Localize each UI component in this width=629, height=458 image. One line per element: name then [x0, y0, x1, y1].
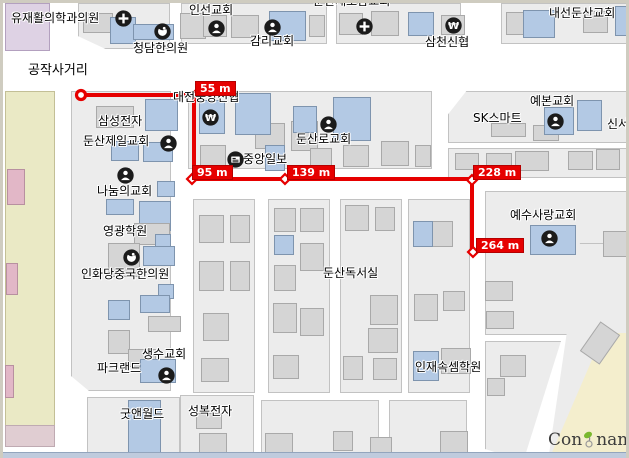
building-blue: [108, 300, 130, 320]
building: [199, 215, 224, 243]
clipped-top-label: 둔산새로남교회: [313, 0, 390, 9]
map-canvas[interactable]: Con namul 유재활의학과의원청담한의원인선교회감리교회둔산새로남교회삼천…: [0, 0, 629, 458]
oriental-medicine-icon: [154, 23, 171, 40]
building-blue: [140, 295, 170, 313]
building: [375, 207, 395, 231]
svg-text:₩: ₩: [448, 21, 459, 32]
building: [431, 221, 453, 247]
church-icon: [547, 113, 564, 130]
building-blue: [274, 235, 294, 255]
label-saengsu-church: 생수교회: [142, 345, 186, 362]
label-parkland: 파크랜드: [97, 359, 141, 376]
building: [343, 356, 363, 380]
building: [274, 208, 296, 232]
building: [487, 378, 505, 396]
building-blue: [157, 181, 175, 197]
label-seongbok-electronics: 성복전자: [188, 402, 232, 419]
building: [300, 208, 324, 232]
building: [273, 355, 299, 379]
building: [486, 311, 514, 329]
hospital-cross-icon: [115, 10, 132, 27]
bank-won-icon: ₩: [202, 109, 219, 126]
label-injae-academy: 인재속셈학원: [415, 358, 481, 375]
label-yujae-clinic: 유재활의학과의원: [11, 9, 99, 26]
building: [371, 11, 399, 36]
congnamul-logo: Con namul: [548, 430, 629, 450]
building: [603, 231, 627, 257]
distance-badge: 228 m: [473, 165, 521, 180]
building: [333, 431, 353, 451]
building: [309, 15, 325, 37]
building-blue: [143, 246, 175, 266]
building: [148, 316, 181, 332]
church-icon: [264, 19, 281, 36]
building-pink: [5, 365, 14, 398]
building: [500, 355, 526, 377]
label-jungang-ilbo: 중앙일보: [243, 150, 287, 167]
building-blue: [235, 93, 271, 135]
oriental-medicine-icon: [123, 249, 140, 266]
building: [415, 145, 431, 167]
bean-sprout-icon: [583, 430, 595, 450]
label-dunsan-reading-room: 둔산독서실: [323, 264, 378, 281]
building: [199, 261, 224, 291]
label-samsung-electronics: 삼성전자: [98, 112, 142, 129]
label-samcheon-bank: 삼천신협: [425, 33, 469, 50]
label-yeonggwang-academy: 영광학원: [103, 222, 147, 239]
building: [568, 151, 593, 170]
church-icon: [117, 167, 134, 184]
label-sk-smart: SK스마트: [473, 109, 522, 126]
building: [273, 303, 297, 333]
label-inhwadang-clinic: 인화당중국한의원: [81, 265, 169, 282]
building: [485, 281, 513, 301]
zone-pink-strip: [5, 425, 55, 447]
building: [274, 265, 296, 291]
building: [300, 243, 324, 271]
label-sinseo-clipped: 신서: [607, 115, 629, 132]
building: [373, 358, 397, 380]
building: [108, 330, 130, 354]
svg-text:₩: ₩: [205, 113, 216, 124]
building-pink: [7, 169, 25, 205]
map-bottom-edge: [3, 452, 626, 458]
building: [345, 205, 369, 231]
church-icon: [320, 116, 337, 133]
logo-text-right: namul: [596, 430, 629, 450]
building: [230, 261, 250, 291]
building-blue: [293, 106, 317, 133]
building: [381, 141, 409, 166]
label-cheongdam-clinic: 청담한의원: [133, 39, 188, 56]
label-nanum-church: 나눔의교회: [97, 182, 152, 199]
building: [230, 215, 250, 243]
building: [343, 145, 369, 167]
church-icon: [208, 20, 225, 37]
church-icon: [158, 367, 175, 384]
distance-badge: 139 m: [287, 165, 335, 180]
distance-badge: 95 m: [192, 165, 233, 180]
building-blue: [106, 199, 134, 215]
building-blue: [413, 221, 433, 247]
label-yebon-church: 예본교회: [530, 92, 574, 109]
building-pink: [6, 263, 18, 295]
church-icon: [541, 230, 558, 247]
building-blue: [577, 100, 602, 131]
church-icon: [160, 135, 177, 152]
building: [414, 294, 438, 321]
distance-badge: 55 m: [195, 81, 236, 96]
building: [443, 291, 465, 311]
label-inseon-church: 인선교회: [189, 1, 233, 18]
building: [201, 358, 229, 382]
label-gongjak-intersection: 공작사거리: [28, 59, 88, 78]
label-yesu-sarang-church: 예수사랑교회: [510, 206, 576, 223]
building: [203, 313, 229, 341]
building: [370, 295, 398, 325]
building: [300, 308, 324, 336]
label-dunsan-jeil-church: 둔산제일교회: [83, 132, 149, 149]
building-blue: [615, 6, 629, 36]
label-naeseon-church: 내선둔산교회: [549, 4, 615, 21]
building: [200, 145, 226, 167]
bank-won-icon: ₩: [445, 17, 462, 34]
distance-badge: 264 m: [476, 238, 524, 253]
building: [368, 328, 398, 353]
hospital-cross-icon: [356, 18, 373, 35]
building: [596, 149, 620, 170]
logo-text-left: Con: [548, 430, 582, 450]
label-good-n-world: 굿앤월드: [120, 405, 164, 422]
